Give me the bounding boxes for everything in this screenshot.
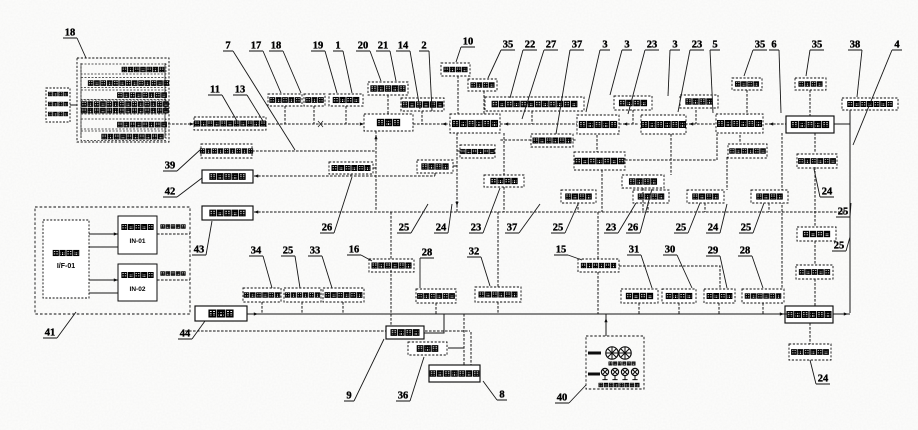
svg-text:37: 37 — [507, 223, 518, 234]
svg-text:25: 25 — [741, 223, 752, 234]
svg-text:40: 40 — [557, 393, 568, 404]
svg-text:1: 1 — [335, 41, 340, 52]
svg-text:43: 43 — [194, 245, 205, 256]
svg-text:25: 25 — [834, 241, 845, 252]
svg-text:13: 13 — [235, 85, 246, 96]
svg-text:10: 10 — [463, 37, 474, 48]
svg-text:41: 41 — [45, 328, 56, 339]
svg-text:25: 25 — [399, 223, 410, 234]
svg-text:25: 25 — [838, 207, 849, 218]
svg-text:7: 7 — [225, 41, 230, 52]
svg-text:24: 24 — [436, 223, 447, 234]
svg-text:30: 30 — [665, 245, 676, 256]
svg-text:25: 25 — [676, 223, 687, 234]
svg-text:23: 23 — [647, 40, 658, 51]
svg-text:I/F-01: I/F-01 — [57, 263, 75, 270]
svg-text:27: 27 — [546, 40, 557, 51]
svg-text:36: 36 — [398, 391, 409, 402]
svg-text:38: 38 — [850, 40, 861, 51]
svg-text:4: 4 — [894, 40, 900, 51]
svg-text:IN-01: IN-01 — [130, 238, 146, 245]
svg-text:22: 22 — [525, 40, 536, 51]
svg-text:6: 6 — [771, 40, 776, 51]
svg-text:23: 23 — [692, 40, 703, 51]
svg-text:24: 24 — [818, 374, 829, 385]
svg-text:15: 15 — [556, 245, 567, 256]
svg-text:29: 29 — [708, 246, 719, 257]
svg-text:33: 33 — [310, 246, 321, 257]
svg-text:34: 34 — [251, 246, 262, 257]
svg-text:IN-02: IN-02 — [130, 286, 146, 293]
svg-text:16: 16 — [349, 245, 360, 256]
svg-text:44: 44 — [180, 329, 191, 340]
svg-text:23: 23 — [606, 223, 617, 234]
svg-text:9: 9 — [346, 391, 351, 402]
svg-text:39: 39 — [165, 161, 176, 172]
svg-text:3: 3 — [624, 40, 629, 51]
svg-text:25: 25 — [553, 223, 564, 234]
svg-text:5: 5 — [712, 40, 717, 51]
svg-text:28: 28 — [422, 248, 433, 259]
svg-text:32: 32 — [469, 247, 480, 258]
svg-text:31: 31 — [629, 245, 640, 256]
svg-text:3: 3 — [602, 40, 607, 51]
svg-text:18: 18 — [65, 28, 76, 39]
svg-text:35: 35 — [503, 40, 514, 51]
svg-text:42: 42 — [165, 187, 176, 198]
svg-text:35: 35 — [755, 40, 766, 51]
svg-text:21: 21 — [378, 41, 389, 52]
svg-text:25: 25 — [283, 246, 294, 257]
svg-text:26: 26 — [322, 223, 333, 234]
svg-text:19: 19 — [313, 41, 324, 52]
svg-text:17: 17 — [251, 41, 262, 52]
svg-text:37: 37 — [572, 40, 583, 51]
svg-text:23: 23 — [471, 223, 482, 234]
svg-text:2: 2 — [421, 41, 426, 52]
svg-text:26: 26 — [628, 223, 639, 234]
svg-text:11: 11 — [210, 85, 220, 96]
svg-text:18: 18 — [271, 41, 282, 52]
svg-text:35: 35 — [812, 40, 823, 51]
svg-text:24: 24 — [822, 187, 833, 198]
svg-text:14: 14 — [398, 41, 409, 52]
svg-text:8: 8 — [499, 390, 504, 401]
svg-text:3: 3 — [672, 40, 677, 51]
svg-text:28: 28 — [740, 246, 751, 257]
svg-text:20: 20 — [358, 41, 369, 52]
svg-text:24: 24 — [708, 223, 719, 234]
